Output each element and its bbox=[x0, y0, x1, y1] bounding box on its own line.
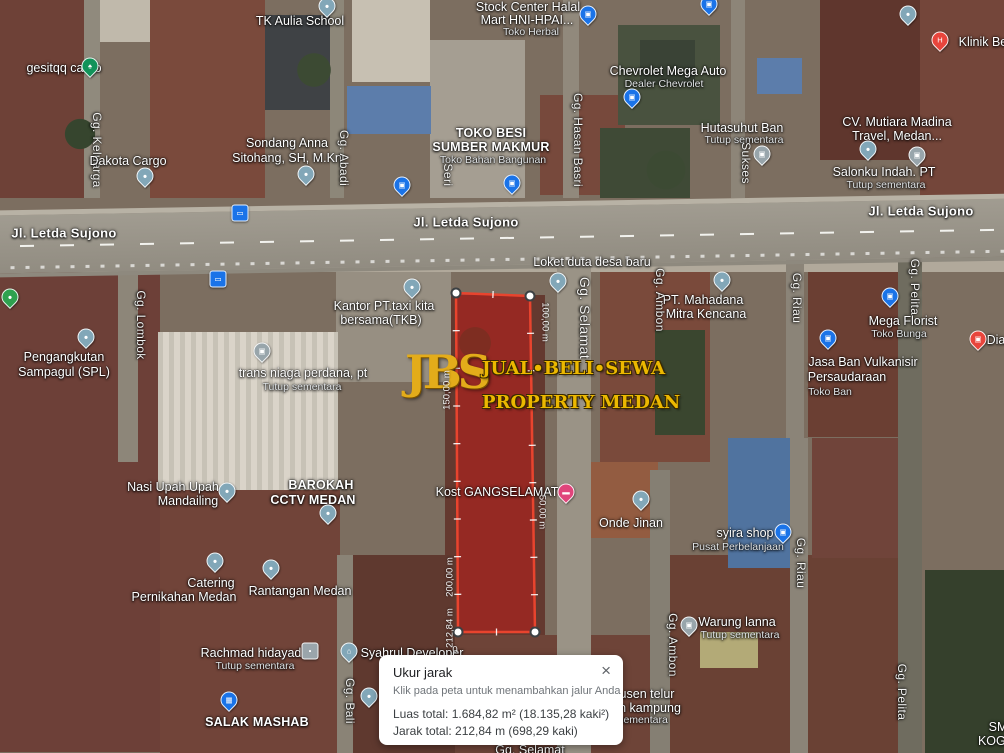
pin-glyph: ▣ bbox=[625, 90, 640, 105]
pin-glyph: ▣ bbox=[821, 331, 836, 346]
dialog-area-total: Luas total: 1.684,82 m² (18.135,28 kaki²… bbox=[393, 706, 609, 723]
pin-glyph: ● bbox=[3, 290, 18, 305]
pin-glyph: ⌂ bbox=[342, 644, 357, 659]
pin-glyph: ● bbox=[299, 167, 314, 182]
pin-glyph: ▦ bbox=[222, 693, 237, 708]
pin-glyph: ▬ bbox=[559, 485, 574, 500]
map-pin-icon[interactable]: ▭ bbox=[232, 205, 249, 222]
pin-glyph: H bbox=[933, 33, 948, 48]
pin-glyph: ● bbox=[715, 273, 730, 288]
pin-glyph: ▣ bbox=[255, 344, 270, 359]
pin-glyph: ● bbox=[220, 484, 235, 499]
map-pin-icon[interactable]: ▭ bbox=[210, 271, 227, 288]
pin-glyph: ▣ bbox=[755, 147, 770, 162]
pin-glyph: ▣ bbox=[505, 176, 520, 191]
pin-glyph: ▣ bbox=[702, 0, 717, 12]
pin-glyph: ● bbox=[405, 280, 420, 295]
pin-glyph: ♠ bbox=[83, 59, 98, 74]
map-viewport[interactable]: JBS JUAL•BELI•SEWA PROPERTY MEDAN TK Aul… bbox=[0, 0, 1004, 753]
measured-area-polygon[interactable] bbox=[0, 0, 1004, 753]
pin-glyph: ▣ bbox=[776, 525, 791, 540]
pin-glyph: ● bbox=[208, 554, 223, 569]
pin-glyph: ▣ bbox=[581, 7, 596, 22]
measure-dialog: Ukur jarak × Klik pada peta untuk menamb… bbox=[379, 655, 623, 745]
pin-glyph: ● bbox=[861, 142, 876, 157]
pin-glyph: ● bbox=[320, 0, 335, 14]
map-pin-icon[interactable]: ▪ bbox=[302, 643, 319, 660]
pin-glyph: ▣ bbox=[883, 289, 898, 304]
pin-glyph: ▣ bbox=[971, 332, 986, 347]
pin-glyph: ▪ bbox=[303, 644, 318, 659]
pin-glyph: ▣ bbox=[910, 148, 925, 163]
pin-glyph: ▭ bbox=[211, 272, 226, 287]
pin-glyph: ● bbox=[138, 169, 153, 184]
pin-glyph: ● bbox=[362, 689, 377, 704]
pin-glyph: ▣ bbox=[682, 618, 697, 633]
pin-glyph: ● bbox=[634, 492, 649, 507]
pin-glyph: ▣ bbox=[395, 178, 410, 193]
dialog-subtitle: Klik pada peta untuk menambahkan jalur A… bbox=[393, 685, 609, 697]
pin-glyph: ● bbox=[551, 274, 566, 289]
close-icon[interactable]: × bbox=[599, 659, 613, 683]
pin-glyph: ● bbox=[79, 330, 94, 345]
pin-glyph: ● bbox=[321, 506, 336, 521]
pin-glyph: ● bbox=[901, 7, 916, 22]
dialog-distance-total: Jarak total: 212,84 m (698,29 kaki) bbox=[393, 723, 609, 740]
pin-glyph: ▭ bbox=[233, 206, 248, 221]
pin-glyph: ● bbox=[264, 561, 279, 576]
dialog-title: Ukur jarak bbox=[393, 665, 609, 680]
